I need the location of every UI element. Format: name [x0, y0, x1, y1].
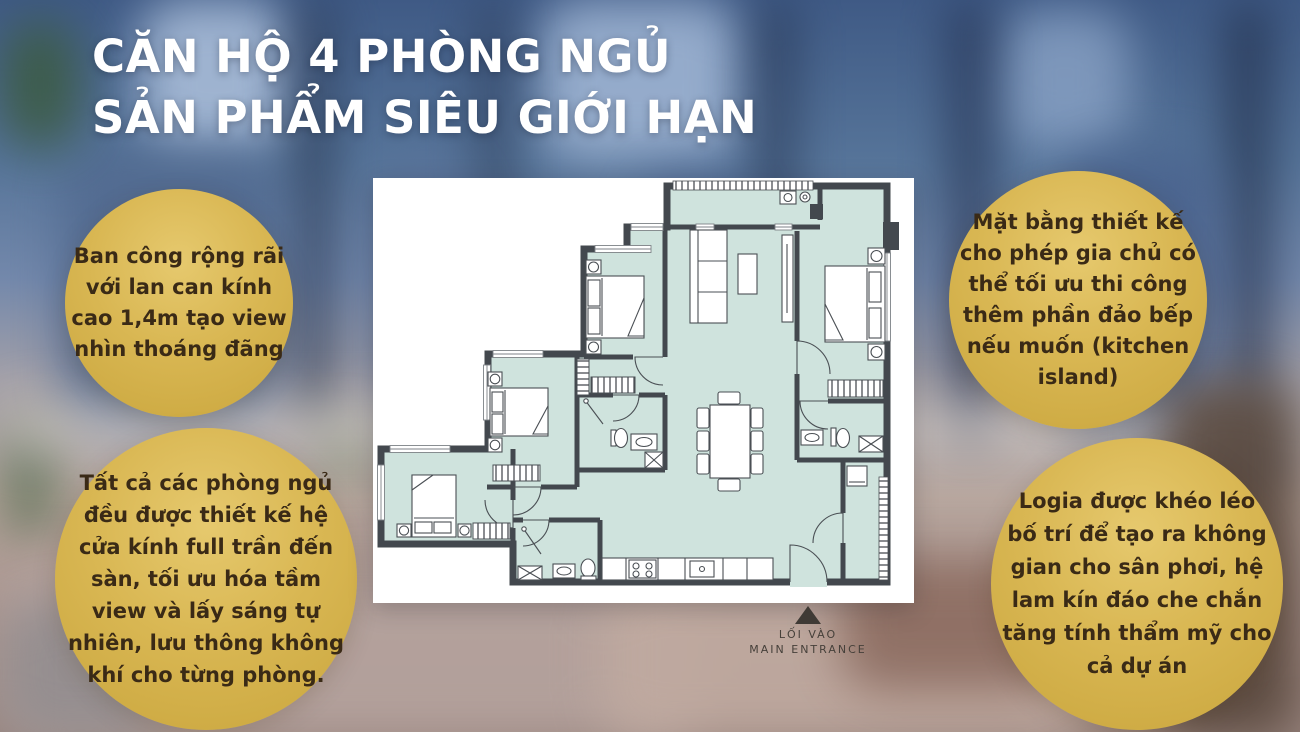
coffee-table [738, 254, 757, 294]
ac-ledge [883, 222, 899, 250]
kitchen-counter [602, 558, 773, 580]
floor-plan-panel [373, 178, 914, 603]
dining-table [710, 405, 750, 478]
entrance-gap [790, 577, 827, 587]
callout-loggia: Logia được khéo léo bố trí để tạo ra khô… [991, 438, 1283, 730]
balcony-rail-hatch [673, 181, 813, 190]
callout-bedroom-glass: Tất cả các phòng ngủ đều được thiết kế h… [55, 428, 357, 730]
column [810, 204, 823, 219]
callout-kitchen-island: Mặt bằng thiết kế cho phép gia chủ có th… [949, 171, 1207, 429]
kitchen-sink-icon [690, 561, 714, 577]
entrance-arrow-icon [795, 606, 821, 624]
page-title: CĂN HỘ 4 PHÒNG NGỦ SẢN PHẨM SIÊU GIỚI HẠ… [92, 26, 757, 148]
callout-balcony: Ban công rộng rãi với lan can kính cao 1… [65, 189, 293, 417]
title-line-2: SẢN PHẨM SIÊU GIỚI HẠN [92, 87, 757, 148]
callout-kitchen-island-text: Mặt bằng thiết kế cho phép gia chủ có th… [957, 207, 1199, 393]
background-blob [1000, 10, 1130, 150]
callout-bedroom-glass-text: Tất cả các phòng ngủ đều được thiết kế h… [63, 467, 349, 691]
loggia-louver-hatch [879, 477, 888, 580]
callout-loggia-text: Logia được khéo léo bố trí để tạo ra khô… [1001, 485, 1273, 683]
floor-plan-diagram [373, 178, 914, 603]
balcony [780, 191, 810, 204]
callout-balcony-text: Ban công rộng rãi với lan can kính cao 1… [71, 241, 287, 365]
background-blob [0, 20, 80, 150]
title-line-1: CĂN HỘ 4 PHÒNG NGỦ [92, 26, 757, 87]
entrance-label-vi: LỐI VÀO [743, 628, 873, 641]
loggia [847, 466, 867, 486]
entrance-marker: LỐI VÀO MAIN ENTRANCE [743, 606, 873, 656]
entrance-label-en: MAIN ENTRANCE [743, 643, 873, 656]
poster: CĂN HỘ 4 PHÒNG NGỦ SẢN PHẨM SIÊU GIỚI HẠ… [0, 0, 1300, 732]
stove-icon [629, 560, 656, 578]
